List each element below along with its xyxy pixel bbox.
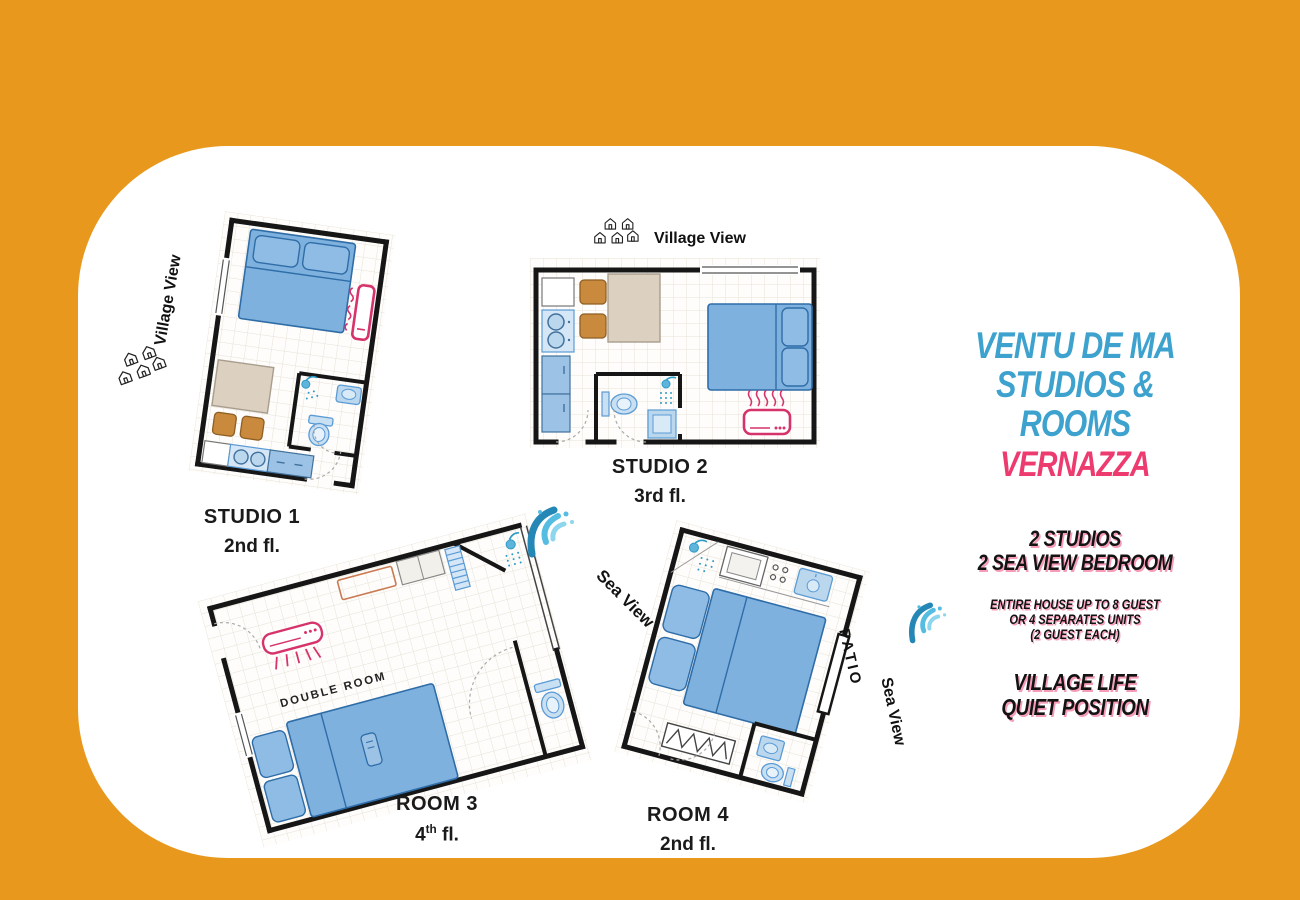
window [700, 265, 800, 275]
studio1-floor: 2nd fl. [172, 536, 332, 558]
sink-icon [336, 385, 362, 405]
studio1-floorplan-drawing [189, 211, 396, 494]
details-line2: OR 4 SEPARATES UNITS [952, 612, 1198, 627]
highlight-line1: VILLAGE LIFE [952, 670, 1198, 695]
highlight-line2: QUIET POSITION [952, 695, 1198, 720]
capacity-block: 2 STUDIOS 2 SEA VIEW BEDROOM [952, 527, 1198, 575]
double-bed-icon [708, 304, 812, 390]
property-title-line2: STUDIOS & ROOMS [952, 365, 1198, 443]
toilet-icon [602, 392, 637, 416]
property-title-line1: VENTU DE MA [952, 326, 1198, 365]
room3-floor: 4th fl. [357, 823, 517, 846]
highlight-block: VILLAGE LIFE QUIET POSITION [952, 670, 1198, 720]
table-icon [608, 274, 660, 342]
studio1-name: STUDIO 1 [172, 506, 332, 529]
property-location: VERNAZZA [952, 447, 1198, 484]
flyer-canvas: DOUBLE ROOM [0, 0, 1300, 900]
room3-name: ROOM 3 [357, 793, 517, 816]
studio2-view-group: Village View [593, 216, 746, 261]
studio2-floorplan [530, 258, 820, 448]
room4-name: ROOM 4 [608, 804, 768, 827]
double-bed-icon [238, 229, 355, 333]
studio2-view-label: Village View [654, 230, 746, 248]
shower-tray-icon [648, 410, 676, 438]
studio1-label: STUDIO 1 2nd fl. [172, 506, 332, 558]
studio2-label: STUDIO 2 3rd fl. [580, 456, 740, 508]
studio2-floorplan-drawing [530, 258, 820, 448]
studio1-floorplan [189, 211, 396, 494]
room4-floor: 2nd fl. [608, 834, 768, 856]
studio2-floor: 3rd fl. [580, 486, 740, 508]
details-block: ENTIRE HOUSE UP TO 8 GUEST OR 4 SEPARATE… [952, 597, 1198, 642]
room4-label: ROOM 4 2nd fl. [608, 804, 768, 856]
details-line3: (2 GUEST EACH) [952, 627, 1198, 642]
info-panel: VENTU DE MA STUDIOS & ROOMS VERNAZZA 2 S… [925, 326, 1225, 720]
details-line1: ENTIRE HOUSE UP TO 8 GUEST [952, 597, 1198, 612]
sea-wave-icon [519, 506, 581, 567]
room3-label: ROOM 3 4th fl. [357, 793, 517, 846]
studio2-name: STUDIO 2 [580, 456, 740, 479]
table-icon [212, 360, 274, 413]
capacity-line2: 2 SEA VIEW BEDROOM [952, 551, 1198, 575]
village-houses-icon [593, 216, 645, 261]
capacity-line1: 2 STUDIOS [952, 527, 1198, 551]
